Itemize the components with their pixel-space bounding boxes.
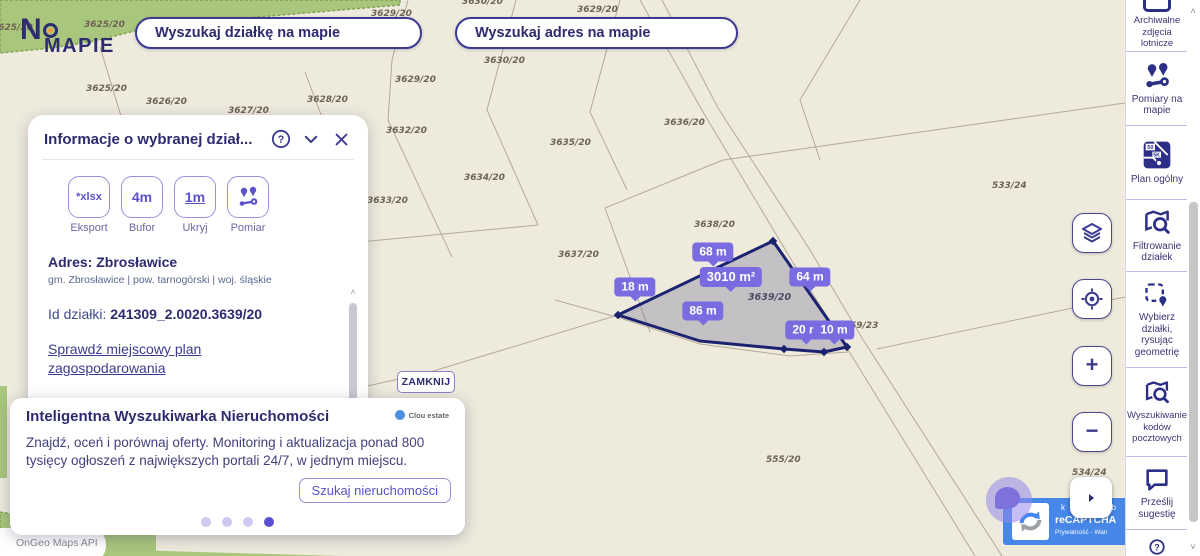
selected-parcel-number: 3639/20 xyxy=(748,292,791,303)
buffer-button[interactable]: 4m xyxy=(121,176,163,218)
parcel-label: 3628/20 xyxy=(307,95,348,105)
tool-caption: Ukryj xyxy=(174,222,216,234)
map-search-icon xyxy=(1143,379,1171,407)
scroll-up-arrow[interactable]: ˄ xyxy=(348,287,358,297)
parcel-label: 3636/20 xyxy=(664,118,705,128)
address-subtext: gm. Zbrosławice | pow. tarnogórski | woj… xyxy=(48,274,368,286)
promo-card: Inteligentna Wyszukiwarka Nieruchomości … xyxy=(10,398,465,535)
close-panel-button[interactable] xyxy=(330,128,352,150)
svg-text:5K: 5K xyxy=(1153,153,1160,159)
expand-panel-button[interactable] xyxy=(1070,477,1112,518)
measurement-label: 64 m xyxy=(789,268,830,287)
sidebar-item-label: Plan ogólny xyxy=(1131,174,1183,186)
tool-caption: Eksport xyxy=(68,222,110,234)
parcel-id-row: Id działki: 241309_2.0020.3639/20 xyxy=(28,286,368,322)
map-attribution: OnGeo Maps API xyxy=(16,537,98,549)
parcel-label: 3632/20 xyxy=(386,126,427,136)
sidebar-scrollbar[interactable]: ˄ ˅ xyxy=(1187,0,1200,556)
draw-selection-icon xyxy=(1143,281,1171,309)
scroll-down-arrow[interactable]: ˅ xyxy=(1188,542,1198,552)
scroll-up-arrow[interactable]: ˄ xyxy=(1188,6,1198,16)
sidebar-item-archival-photos[interactable]: Archiwalne zdjęcia lotnicze xyxy=(1126,0,1188,52)
collapse-button[interactable] xyxy=(300,128,322,150)
chat-bubble-icon xyxy=(995,487,1020,509)
app-logo[interactable]: N MAPIE xyxy=(20,16,115,58)
export-tool: *xlsx Eksport xyxy=(68,176,114,234)
logo-pin-icon xyxy=(43,23,58,38)
sidebar-item-draw-geometry[interactable]: Wybierz działki, rysując geometrię xyxy=(1126,272,1188,368)
sidebar-item-map-measurements[interactable]: Pomiary na mapie xyxy=(1126,52,1188,126)
sidebar-item-filter-parcels[interactable]: Filtrowanie działek xyxy=(1126,200,1188,272)
sidebar-item-label: Wybierz działki, rysując geometrię xyxy=(1126,312,1188,358)
parcel-label: 3630/20 xyxy=(462,0,503,7)
measurement-label: 86 m xyxy=(682,302,723,321)
map-search-icon xyxy=(1142,208,1172,238)
svg-text:50: 50 xyxy=(1147,145,1153,151)
search-real-estate-button[interactable]: Szukaj nieruchomości xyxy=(299,478,451,503)
locate-button[interactable] xyxy=(1072,279,1112,319)
promo-title: Inteligentna Wyszukiwarka Nieruchomości xyxy=(26,408,395,425)
layers-button[interactable] xyxy=(1072,213,1112,253)
area-label: 3010 m² xyxy=(700,267,762,287)
sidebar-item-help[interactable]: ? xyxy=(1126,530,1188,556)
measurement-label: 68 m xyxy=(692,243,733,262)
parcel-label: 3634/20 xyxy=(464,173,505,183)
brand-logo-icon xyxy=(395,410,405,420)
measurement-label: 10 m xyxy=(813,321,854,340)
locate-icon xyxy=(1080,287,1104,311)
close-icon xyxy=(333,131,350,148)
search-address-placeholder: Wyszukaj adres na mapie xyxy=(475,25,650,41)
search-address-input[interactable]: Wyszukaj adres na mapie xyxy=(455,17,738,49)
parcel-label: 3633/20 xyxy=(367,196,408,206)
zoom-out-button[interactable]: − xyxy=(1072,412,1112,452)
tools-sidebar: Archiwalne zdjęcia lotnicze Pomiary na m… xyxy=(1125,0,1200,556)
close-measurements-button[interactable]: ZAMKNIJ xyxy=(397,371,455,393)
promo-brand: Clou estate xyxy=(395,410,449,420)
parcel-label: 3635/20 xyxy=(550,138,591,148)
export-button[interactable]: *xlsx xyxy=(68,176,110,218)
green-strip-left xyxy=(0,386,7,478)
measure-pins-icon xyxy=(1142,61,1172,91)
sidebar-item-label: Archiwalne zdjęcia lotnicze xyxy=(1126,15,1188,50)
svg-text:?: ? xyxy=(278,134,285,146)
carousel-dot[interactable] xyxy=(222,517,232,527)
buffer-tool: 4m Bufor xyxy=(121,176,167,234)
sidebar-item-postal-codes[interactable]: Wyszukiwanie kodów pocztowych xyxy=(1126,368,1188,457)
help-icon: ? xyxy=(1142,538,1172,556)
brand-name: Clou estate xyxy=(409,411,449,420)
measure-button[interactable] xyxy=(227,176,269,218)
help-icon: ? xyxy=(271,129,291,149)
parcel-label: 3630/20 xyxy=(484,56,525,66)
sidebar-item-general-plan[interactable]: 50 5K Plan ogólny xyxy=(1126,126,1188,200)
recaptcha-privacy-links[interactable]: Prywatność - Wan xyxy=(1055,529,1108,536)
sidebar-item-label: Pomiary na mapie xyxy=(1126,94,1188,117)
feedback-bubble-icon xyxy=(1143,466,1171,494)
parcel-label: 3637/20 xyxy=(558,250,599,260)
sidebar-item-label: Prześlij sugestię xyxy=(1126,497,1188,520)
zoning-plan-link[interactable]: Sprawdź miejscowy plan zagospodarowania xyxy=(48,340,293,378)
zoom-in-button[interactable]: + xyxy=(1072,346,1112,386)
carousel-dot-active[interactable] xyxy=(264,517,274,527)
address-block: Adres: Zbrosławice gm. Zbrosławice | pow… xyxy=(28,234,368,286)
search-parcel-input[interactable]: Wyszukaj działkę na mapie xyxy=(135,17,422,49)
sidebar-item-send-suggestion[interactable]: Prześlij sugestię xyxy=(1126,457,1188,530)
carousel-dot[interactable] xyxy=(243,517,253,527)
scrollbar-thumb[interactable] xyxy=(1189,202,1198,522)
tool-caption: Pomiar xyxy=(227,222,269,234)
map-app: 3625/20 3625/20 3625/20 3626/20 3627/20 … xyxy=(0,0,1200,556)
play-arrow-icon xyxy=(1085,492,1097,504)
measure-pins-icon xyxy=(236,185,260,209)
panel-title: Informacje o wybranej dział... xyxy=(44,131,262,148)
logo-text: MAPIE xyxy=(44,35,115,58)
parcel-label: 533/24 xyxy=(992,181,1027,191)
parcel-label: 3638/20 xyxy=(694,220,735,230)
parcel-label: 3629/20 xyxy=(577,5,618,15)
parcel-label: 3626/20 xyxy=(146,97,187,107)
carousel-dot[interactable] xyxy=(201,517,211,527)
measurement-label: 18 m xyxy=(614,278,655,297)
logo-letter: N xyxy=(20,13,42,46)
promo-body: Znajdź, oceń i porównaj oferty. Monitori… xyxy=(26,434,454,470)
parcel-toolbar: *xlsx Eksport 4m Bufor 1m Ukryj xyxy=(28,160,368,234)
address-value: Zbrosławice xyxy=(96,254,177,270)
parcel-id-label: Id działki: xyxy=(48,306,106,322)
parcel-label: 3629/20 xyxy=(395,75,436,85)
parcel-label: 555/20 xyxy=(766,455,801,465)
hide-tool: 1m Ukryj xyxy=(174,176,220,234)
help-button[interactable]: ? xyxy=(270,128,292,150)
svg-text:?: ? xyxy=(1154,542,1160,552)
general-plan-icon: 50 5K xyxy=(1141,139,1173,171)
parcel-label: 3625/20 xyxy=(86,84,127,94)
search-parcel-placeholder: Wyszukaj działkę na mapie xyxy=(155,25,340,41)
hide-button[interactable]: 1m xyxy=(174,176,216,218)
address-label: Adres: xyxy=(48,254,92,270)
sidebar-item-label: Wyszukiwanie kodów pocztowych xyxy=(1126,410,1188,445)
chat-widget-button[interactable] xyxy=(986,477,1032,523)
parcel-info-panel: Informacje o wybranej dział... ? xyxy=(28,115,368,415)
carousel-dots xyxy=(10,517,465,527)
archival-photos-icon xyxy=(1143,0,1171,12)
tool-caption: Bufor xyxy=(121,222,163,234)
measure-tool: Pomiar xyxy=(227,176,273,234)
parcel-id-value: 241309_2.0020.3639/20 xyxy=(110,306,262,322)
sidebar-item-label: Filtrowanie działek xyxy=(1126,241,1188,264)
chevron-down-icon xyxy=(302,130,320,148)
layers-icon xyxy=(1080,221,1104,245)
